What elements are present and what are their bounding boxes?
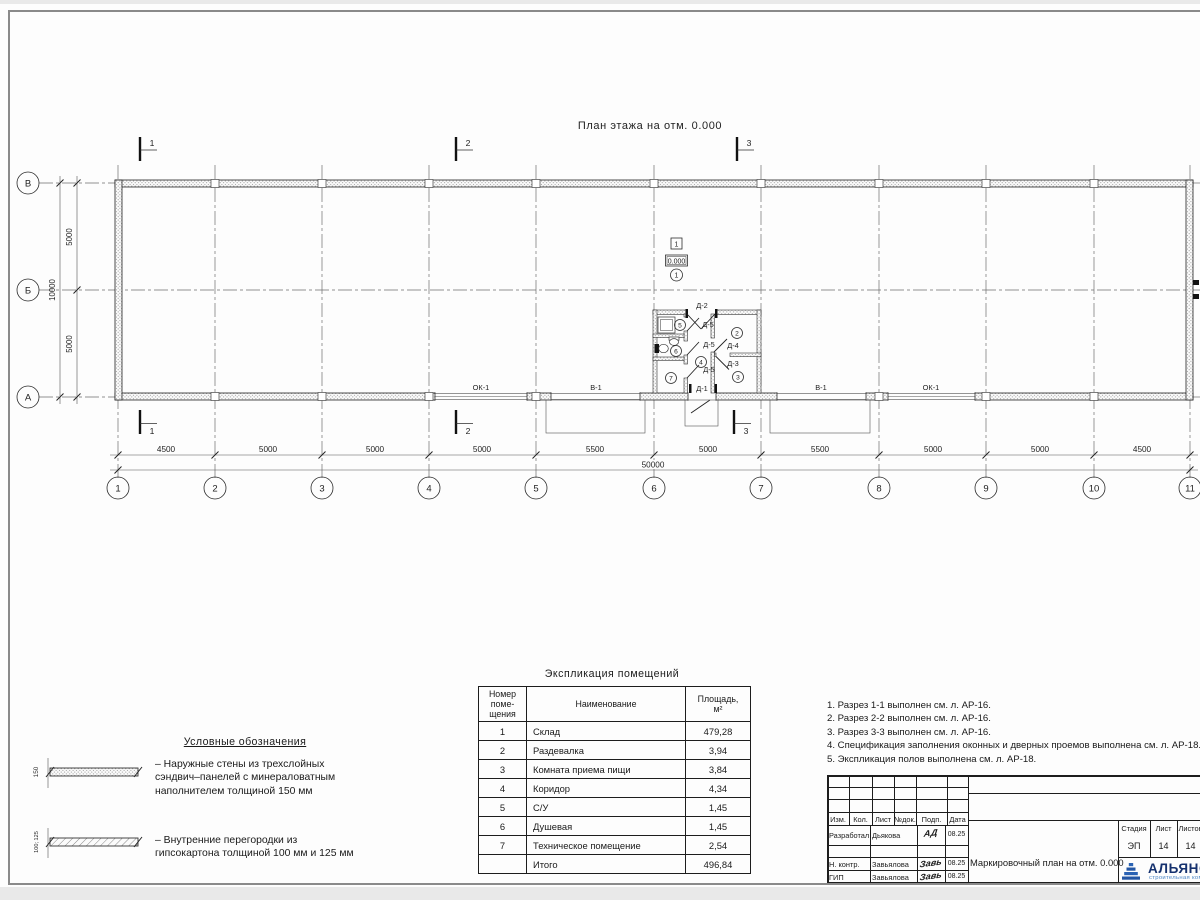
tb-role-gip: ГИП [829,873,844,882]
room-6: 6 [674,348,678,355]
cell: 1,45 [686,817,751,836]
room-1: 1 [675,273,679,280]
tb-col-podp: Подп. [916,815,947,824]
tb-sheets-value: 14 [1177,841,1200,851]
col-name: Наименование [527,687,686,722]
legend-title: Условные обозначения [125,736,365,748]
cell: 4 [479,779,527,798]
section-2-bottom: 2 [466,426,471,436]
tb-stage-value: ЭП [1118,841,1150,851]
grid-6: 6 [651,483,656,494]
room-2: 2 [735,330,739,337]
grid-row-b: Б [25,285,31,296]
label-ok1-left: ОК-1 [473,383,490,392]
cell: Техническое помещение [527,836,686,855]
dim-left-1: 5000 [65,228,74,246]
cell: 496,84 [686,855,751,874]
tb-col-data: Дата [947,815,968,824]
schedule-table: Номер поме- щения Наименование Площадь, … [478,686,751,874]
cell: Склад [527,722,686,741]
grid-1: 1 [115,483,120,494]
gate-v1-right [777,392,866,400]
note-3: 3. Разрез 3-3 выполнен см. л. АР-16. [827,726,1200,739]
cell: 6 [479,817,527,836]
cell: 3,94 [686,741,751,760]
dim-9-10: 5000 [1031,445,1050,454]
table-row: 3Комната приема пищи3,84 [479,760,751,779]
table-row: 2Раздевалка3,94 [479,741,751,760]
grid-5: 5 [533,483,538,494]
cell: 7 [479,836,527,855]
grid-column-bubbles: 1 2 3 4 5 6 7 8 9 10 11 [107,477,1200,499]
section-2-top: 2 [466,138,471,148]
note-5: 5. Экспликация полов выполнена см. л. АР… [827,753,1200,766]
col-number: Номер поме- щения [479,687,527,722]
legend-dim-150: 150 [33,766,40,777]
company-logo-icon [1122,861,1144,881]
col-area: Площадь, м² [686,687,751,722]
floor-plan-drawing: План этажа на отм. 0.000 5000 5000 10000 [0,0,1200,520]
cell: С/У [527,798,686,817]
tb-role-developer: Разработал [829,831,869,840]
dim-4-5: 5000 [473,445,492,454]
legend-text-exterior: – Наружные стены из трехслойных сэндвич–… [155,758,390,798]
section-3-top: 3 [747,138,752,148]
label-ok1-right: ОК-1 [923,383,940,392]
tb-sheet-value: 14 [1150,841,1177,851]
dim-1-2: 4500 [157,445,176,454]
tb-col-ndok: №док. [894,815,916,824]
room-7: 7 [669,375,673,382]
cell [479,855,527,874]
label-d4: Д-4 [727,341,739,350]
label-d5-a: Д-5 [702,320,714,329]
company-logo-name: АЛЬЯНС [1148,861,1200,876]
room-3: 3 [736,374,740,381]
label-d1: Д-1 [696,384,708,393]
tb-name-developer: Дьякова [872,831,900,840]
signature: АД [924,827,939,839]
tb-col-izm: Изм. [827,815,849,824]
cell: 479,28 [686,722,751,741]
tb-date-developer: 08.25 [945,831,968,838]
tb-doc-title: Маркировочный план на отм. 0.000 [970,857,1116,868]
grid-row-bubbles: В Б А [17,172,39,408]
tb-date-ncontrol: 08.25 [945,860,968,867]
window-ok1-left [435,392,527,400]
cell: Коридор [527,779,686,798]
dim-left-total: 10000 [48,278,57,300]
grid-11: 11 [1185,483,1195,494]
drawing-sheet: { "plan": { "title": "План этажа на отм.… [0,0,1200,900]
cell: Раздевалка [527,741,686,760]
cell: 4,34 [686,779,751,798]
room-5: 5 [678,322,682,329]
tb-sheet-label: Лист [1150,824,1177,833]
grid-2: 2 [212,483,217,494]
cell: 2,54 [686,836,751,855]
level-mark: 1 0.000 1 [666,238,688,281]
section-1-bottom: 1 [150,426,155,436]
tb-sig-ncontrol: Завь [917,858,945,868]
section-1-top: 1 [150,138,155,148]
dim-total: 50000 [642,461,665,470]
room-4: 4 [699,359,703,366]
dim-left-2: 5000 [65,335,74,353]
dim-2-3: 5000 [259,445,278,454]
dim-8-9: 5000 [924,445,943,454]
tb-stage-label: Стадия [1118,824,1150,833]
section-3-bottom: 3 [744,426,749,436]
grid-row-a: А [25,392,32,403]
cell: 3,84 [686,760,751,779]
cell: Комната приема пищи [527,760,686,779]
signature: Завь [919,857,942,870]
grid-9: 9 [983,483,988,494]
notes-list: 1. Разрез 1-1 выполнен см. л. АР-16. 2. … [827,699,1200,766]
label-d5-b: Д-5 [703,340,715,349]
grid-10: 10 [1089,483,1100,494]
label-d2: Д-2 [696,301,708,310]
table-row: 4Коридор4,34 [479,779,751,798]
table-row: 1Склад479,28 [479,722,751,741]
label-v1-right: В-1 [815,383,827,392]
window-ok1-right [888,392,975,400]
table-row: 5С/У1,45 [479,798,751,817]
dim-3-4: 5000 [366,445,385,454]
dim-6-7: 5000 [699,445,718,454]
legend-text-partition: – Внутренние перегородки из гипсокартона… [155,834,415,861]
tb-col-list: Лист [872,815,894,824]
title-block: Изм. Кол. Лист №док. Подп. Дата Разработ… [822,775,1200,884]
cell: 1,45 [686,798,751,817]
cell: 5 [479,798,527,817]
tb-sheets-label: Листов [1177,824,1200,833]
cell: 1 [479,722,527,741]
gate-v1-left [551,392,640,400]
table-total-row: Итого496,84 [479,855,751,874]
signature: Завь [919,869,942,882]
plan-title: План этажа на отм. 0.000 [578,120,722,132]
screen-edge-bottom [0,887,1200,900]
room-schedule: Экспликация помещений Номер поме- щения … [478,668,751,874]
grid-8: 8 [876,483,881,494]
note-1: 1. Разрез 1-1 выполнен см. л. АР-16. [827,699,1200,712]
grid-7: 7 [758,483,763,494]
label-d3: Д-3 [727,359,739,368]
dim-7-8: 5500 [811,445,830,454]
legend-dim-100-125: 100; 125 [34,831,40,853]
tb-name-ncontrol: Завьялова [872,860,909,869]
table-row: 6Душевая1,45 [479,817,751,836]
cell: Итого [527,855,686,874]
porches [546,400,870,433]
opening-mark: 1 [675,241,679,248]
right-wall-gate-marks [1193,280,1199,299]
table-row: 7Техническое помещение2,54 [479,836,751,855]
grid-lines [39,165,1200,478]
dim-5-6: 5500 [586,445,605,454]
note-4: 4. Спецификация заполнения оконных и две… [827,739,1200,752]
tb-role-ncontrol: Н. контр. [829,860,860,869]
tb-col-kol: Кол. [849,815,872,824]
note-2: 2. Разрез 2-2 выполнен см. л. АР-16. [827,712,1200,725]
grid-4: 4 [426,483,431,494]
tb-sig-gip: Завь [917,871,945,881]
label-v1-left: В-1 [590,383,602,392]
cell: Душевая [527,817,686,836]
cell: 2 [479,741,527,760]
dim-10-11: 4500 [1133,445,1152,454]
schedule-title: Экспликация помещений [478,668,746,680]
company-logo-subtitle: строительная компания [1149,875,1200,881]
cell: 3 [479,760,527,779]
grid-row-v: В [25,178,31,189]
tb-name-gip: Завьялова [872,873,909,882]
tb-date-gip: 08.25 [945,873,968,880]
tb-sig-developer: АД [917,828,945,838]
grid-3: 3 [319,483,324,494]
elevation-value: 0.000 [668,258,686,265]
